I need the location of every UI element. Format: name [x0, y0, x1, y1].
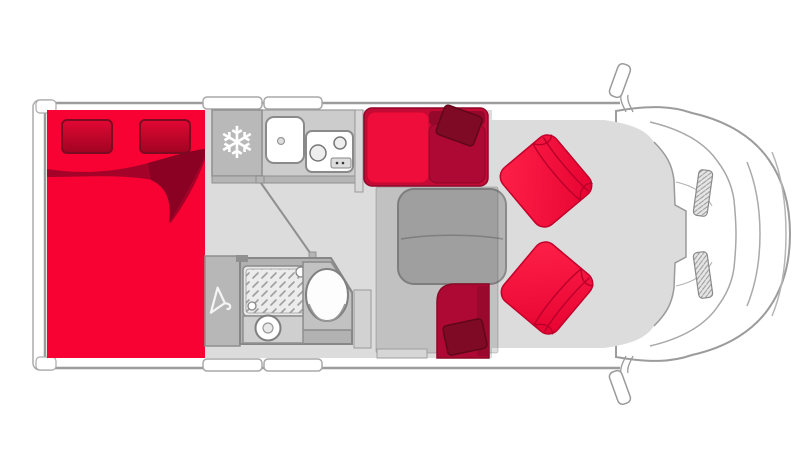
- roof-hatch-top-right: [264, 97, 322, 109]
- entry-step: [377, 349, 427, 358]
- mirror-bottom-head: [608, 369, 632, 405]
- floorplan-canvas: ❄: [0, 0, 798, 466]
- floorplan: ❄: [0, 0, 798, 466]
- double-bed: [47, 110, 205, 358]
- hob-burner-large: [310, 145, 326, 161]
- shower-drain: [248, 302, 256, 310]
- bathroom-corner-block: [236, 255, 248, 262]
- bathroom-side-wall: [354, 290, 371, 348]
- side-seat: [437, 284, 489, 358]
- hob-burner-small: [334, 137, 346, 149]
- kitchen-wall: [355, 110, 363, 192]
- hob-controls: [331, 158, 351, 168]
- roof-hatch-bottom-right: [264, 359, 322, 371]
- door-swing-start: [256, 176, 264, 183]
- hob-knob-2: [342, 162, 345, 165]
- pillow-left: [62, 120, 112, 153]
- pillow-right: [140, 120, 190, 153]
- kitchen-counter-edge: [212, 176, 355, 183]
- rear-cap-tab-bottom: [36, 357, 56, 370]
- wardrobe: [205, 256, 240, 346]
- mirror-top-head: [608, 62, 632, 98]
- roof-hatch-bottom-left: [203, 359, 262, 371]
- bench-sofa: [364, 104, 488, 186]
- roof-hatch-top-left: [203, 97, 262, 109]
- hob-knob-1: [336, 162, 339, 165]
- bench-cushion-left: [367, 112, 429, 183]
- kitchen-sink: [266, 117, 304, 163]
- snowflake-icon: ❄: [219, 118, 256, 169]
- sink-drain: [278, 138, 285, 145]
- toilet-bowl: [306, 269, 348, 321]
- washbasin-drain: [263, 323, 273, 333]
